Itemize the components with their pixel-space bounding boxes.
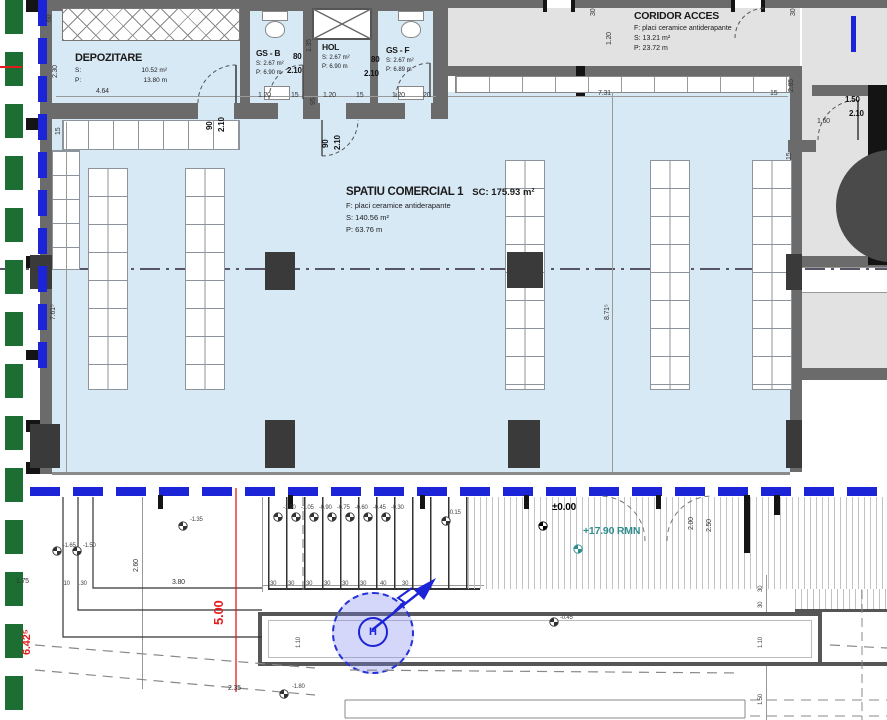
dim-label: +17.90 RMN bbox=[583, 526, 640, 537]
room-area: S: 2.67 m² bbox=[322, 55, 350, 61]
wall-arm-door bbox=[788, 140, 816, 152]
room-floor: F: placi ceramice antiderapante bbox=[346, 201, 535, 210]
mullion bbox=[420, 495, 425, 509]
jamb bbox=[571, 0, 575, 12]
pilaster bbox=[786, 254, 802, 290]
dim-label: 30 bbox=[306, 581, 312, 587]
dim-label: -1.35 bbox=[190, 517, 203, 523]
dim-label: 90 bbox=[206, 122, 214, 131]
room-area: S: 2.67 m² bbox=[256, 61, 284, 67]
floor-plan: H bbox=[0, 0, 887, 720]
dim-line bbox=[448, 96, 788, 97]
wall-coridor-bottom bbox=[448, 66, 792, 76]
door-gap-top-1 bbox=[545, 0, 573, 8]
door-gap-hol bbox=[320, 103, 346, 119]
wall-depo-gsb bbox=[240, 0, 250, 119]
pilaster bbox=[30, 424, 60, 468]
curb-line-right bbox=[822, 662, 887, 666]
sill-line bbox=[52, 472, 790, 475]
dim-label: 80 bbox=[293, 53, 302, 61]
pilaster bbox=[786, 420, 802, 468]
dim-label: 7.31 bbox=[598, 90, 611, 97]
dim-label: 2.10 bbox=[334, 135, 342, 150]
column bbox=[265, 420, 295, 468]
room-name: DEPOZITARE bbox=[75, 52, 167, 64]
room-perimeter: P: 6.90 m bbox=[256, 70, 284, 76]
dim-label: 1.50 bbox=[845, 96, 860, 104]
shelving-rack bbox=[185, 168, 225, 390]
glazing-band bbox=[455, 76, 790, 93]
dim-label: .30 bbox=[79, 581, 87, 587]
toilet-tank bbox=[262, 11, 288, 21]
door-gap-depozitare bbox=[198, 103, 234, 119]
column bbox=[508, 420, 540, 468]
column bbox=[507, 252, 543, 288]
hol-label: HOL S: 2.67 m² P: 6.90 m bbox=[322, 42, 350, 70]
dim-label: 2.00 bbox=[688, 517, 695, 530]
room-perimeter: P: 6.89 m bbox=[386, 67, 414, 73]
dim-label: 30 bbox=[758, 602, 764, 608]
dim-label: 2.35 bbox=[228, 685, 241, 692]
room-area: S: 2.67 m² bbox=[386, 58, 414, 64]
dim-label: 1.20 bbox=[392, 92, 405, 99]
dim-label: 95 bbox=[310, 98, 317, 105]
dim-label: 90 bbox=[322, 140, 330, 149]
dim-label: 30 bbox=[342, 581, 348, 587]
door-gap-gsb bbox=[278, 103, 304, 119]
wall-stub-facade bbox=[744, 495, 750, 553]
dim-label: 6.42⁵ bbox=[22, 629, 33, 655]
dim-label: 1.35 bbox=[306, 39, 313, 52]
dim-label: -0.60 bbox=[355, 505, 368, 511]
jamb bbox=[761, 0, 765, 12]
mullion bbox=[656, 495, 661, 509]
dim-label: 30 bbox=[402, 581, 408, 587]
arm-landing bbox=[802, 267, 887, 293]
room-name: HOL bbox=[322, 42, 350, 52]
property-boundary bbox=[5, 0, 23, 720]
dim-label: -0.90 bbox=[319, 505, 332, 511]
dim-label: -0.30 bbox=[391, 505, 404, 511]
wall-arm-bottom bbox=[790, 368, 887, 380]
dim-label: 2.10 bbox=[364, 70, 379, 78]
shelving-rack bbox=[650, 160, 690, 390]
ventilation-shaft bbox=[312, 8, 372, 40]
gs-b-label: GS - B S: 2.67 m² P: 6.90 m bbox=[256, 48, 284, 76]
p-value: 13.80 m bbox=[144, 77, 168, 84]
dim-label: 30 bbox=[288, 581, 294, 587]
dim-label: -1.50 bbox=[83, 543, 96, 549]
room-floor: F: placi ceramice antiderapante bbox=[634, 25, 732, 32]
dim-label: 7.61⁵ bbox=[50, 304, 57, 320]
coridor-fill bbox=[448, 8, 800, 66]
dim-label: 1.75 bbox=[16, 578, 29, 585]
dim-label: 1.10 bbox=[296, 637, 302, 648]
room-perimeter: P: 63.76 m bbox=[346, 225, 535, 234]
dim-label: -1.20 bbox=[283, 505, 296, 511]
dim-label: 2.60 bbox=[133, 559, 140, 572]
dim-label: 15 bbox=[770, 90, 777, 97]
dim-label: 30 bbox=[590, 9, 597, 16]
jamb bbox=[543, 0, 547, 12]
coridor-label: CORIDOR ACCES F: placi ceramice antidera… bbox=[634, 10, 732, 52]
dim-label: 2.30 bbox=[52, 65, 59, 78]
depozitare-label: DEPOZITARE S: 10.52 m² P: 13.80 m bbox=[75, 52, 167, 84]
dim-label: 40 bbox=[380, 581, 386, 587]
dim-label: 1.20 bbox=[323, 92, 336, 99]
dim-label: 30 bbox=[324, 581, 330, 587]
room-name: CORIDOR ACCES bbox=[634, 10, 732, 22]
walkway-hatch bbox=[468, 497, 887, 589]
s-label: S: bbox=[75, 67, 81, 74]
dim-label: 15 bbox=[55, 128, 62, 135]
dim-label: .10 bbox=[62, 581, 70, 587]
dim-label: 1.50 bbox=[758, 694, 764, 705]
dim-label: 8.71⁵ bbox=[604, 304, 611, 320]
mullion bbox=[158, 495, 163, 509]
dim-label: 20 bbox=[423, 92, 430, 99]
dim-label: ±0.00 bbox=[552, 503, 576, 513]
elevator-wall bbox=[868, 85, 887, 265]
wall-gsf-coridor bbox=[433, 0, 448, 119]
dim-label: -1.65 bbox=[63, 543, 76, 549]
dim-label: 2.10 bbox=[287, 67, 302, 75]
dim-label: 30 bbox=[790, 9, 797, 16]
room-perimeter: P: 6.90 m bbox=[322, 64, 350, 70]
toilet-bowl bbox=[265, 21, 285, 38]
facade-glazing-line-left bbox=[38, 0, 47, 368]
s-value: 10.52 m² bbox=[141, 67, 167, 74]
dim-label: 30 bbox=[360, 581, 366, 587]
dim-label: -0.15 bbox=[448, 510, 461, 516]
window-right bbox=[851, 16, 856, 52]
dim-label: 15 bbox=[786, 153, 793, 160]
dim-line bbox=[262, 497, 263, 592]
hydrant-symbol: H bbox=[358, 617, 388, 647]
dim-label: -0.75 bbox=[337, 505, 350, 511]
room-area: S: 140.56 m² bbox=[346, 213, 535, 222]
toilet-bowl bbox=[401, 21, 421, 38]
dim-line bbox=[66, 122, 67, 472]
dim-label: 3.80 bbox=[172, 579, 185, 586]
mullion bbox=[774, 495, 780, 515]
dim-label: 15 bbox=[291, 92, 298, 99]
dim-label: 1.60 bbox=[817, 118, 830, 125]
dim-label: 2.10 bbox=[218, 117, 226, 132]
column bbox=[265, 252, 295, 290]
door-gap-gsf bbox=[405, 103, 431, 119]
room-name: SPATIU COMERCIAL 1 bbox=[346, 186, 463, 198]
dim-line bbox=[142, 497, 143, 689]
dim-label: 1.10 bbox=[758, 637, 764, 648]
hatched-band bbox=[62, 8, 240, 41]
room-area: S: 13.21 m² bbox=[634, 35, 732, 42]
dim-label: 2.10 bbox=[849, 110, 864, 118]
mullion bbox=[524, 495, 529, 509]
room-name: GS - F bbox=[386, 45, 414, 55]
stairs-edge bbox=[268, 588, 480, 590]
toilet-tank bbox=[398, 11, 424, 21]
room-perimeter: P: 23.72 m bbox=[634, 45, 732, 52]
p-label: P: bbox=[75, 77, 81, 84]
dim-label: 60 bbox=[46, 15, 53, 22]
dim-label: 1.20 bbox=[606, 32, 613, 45]
dim-label: 30 bbox=[270, 581, 276, 587]
dim-label: 30 bbox=[758, 586, 764, 592]
dim-label: 80 bbox=[371, 56, 380, 64]
dim-label: 5.00 bbox=[212, 600, 225, 625]
dim-label: 1.20 bbox=[258, 92, 271, 99]
dim-label: -0.45 bbox=[373, 505, 386, 511]
dim-label: -0.45 bbox=[560, 615, 573, 621]
shelving-rack bbox=[88, 168, 128, 390]
room-sc-area: SC: 175.93 m² bbox=[472, 187, 534, 198]
spatiu-comercial-label: SPATIU COMERCIAL 1 SC: 175.93 m² F: plac… bbox=[346, 186, 535, 234]
room-name: GS - B bbox=[256, 48, 284, 58]
wall-top-corridor bbox=[448, 0, 887, 8]
dim-label: 4.64 bbox=[96, 88, 109, 95]
dim-label: -1.05 bbox=[301, 505, 314, 511]
dim-label: -1.80 bbox=[292, 684, 305, 690]
walkway-hatch-right bbox=[795, 589, 887, 609]
dim-label: 15 bbox=[356, 92, 363, 99]
dim-line bbox=[612, 92, 613, 472]
gs-f-label: GS - F S: 2.67 m² P: 6.89 m bbox=[386, 45, 414, 73]
hydrant-letter: H bbox=[369, 626, 377, 638]
door-gap-top-2 bbox=[733, 0, 763, 8]
dim-label: 2.50 bbox=[706, 519, 713, 532]
dim-label: 2.85 bbox=[788, 79, 795, 92]
dim-line bbox=[56, 96, 436, 97]
